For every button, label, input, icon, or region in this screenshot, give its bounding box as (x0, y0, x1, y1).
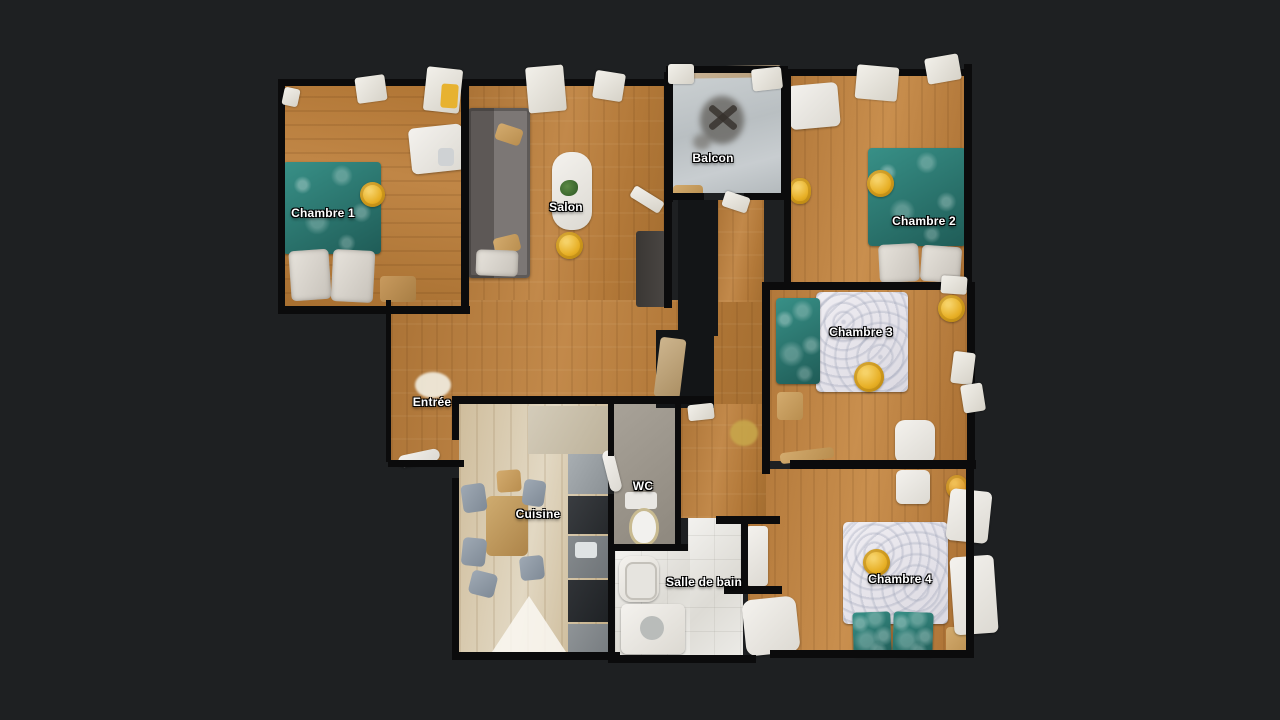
wall (966, 462, 974, 658)
scan-artifact (940, 275, 967, 295)
scan-artifact (668, 64, 694, 84)
wall (666, 193, 704, 200)
scan-artifact (751, 66, 783, 91)
wall (452, 396, 459, 440)
wall (386, 300, 391, 462)
wall (664, 200, 672, 308)
wall (452, 396, 714, 404)
toilet-tank (625, 492, 657, 509)
chair (460, 482, 488, 513)
fridge (568, 454, 608, 494)
wall (664, 72, 673, 202)
wall (770, 650, 974, 658)
chair (519, 555, 545, 581)
chair (496, 469, 521, 493)
wall (608, 404, 614, 456)
scan-artifact (855, 64, 900, 102)
dining-table (486, 496, 528, 556)
chair (938, 295, 965, 322)
pouf (867, 170, 894, 197)
washer-drum (640, 616, 664, 640)
wall (461, 85, 469, 311)
scan-artifact (525, 64, 567, 113)
wall (724, 586, 782, 594)
toilet-bowl (629, 508, 659, 546)
scan-void (678, 200, 718, 336)
chair (789, 178, 811, 204)
oven (568, 496, 608, 534)
wall (608, 551, 615, 663)
counter (528, 406, 608, 454)
armchair (896, 470, 930, 504)
dishwasher (568, 580, 608, 622)
plant (560, 180, 578, 196)
shower-tray (741, 595, 801, 656)
wardrobe (787, 82, 841, 130)
scan-artifact (950, 351, 976, 385)
wall (278, 306, 470, 314)
sofa-throw (476, 249, 519, 276)
scan-artifact (960, 382, 986, 413)
bed-pillows-teal (776, 298, 820, 384)
cabinet (568, 624, 608, 652)
hallway-floor-bath-side[interactable] (681, 404, 766, 518)
wall (452, 652, 620, 660)
wardrobe-door (949, 555, 998, 636)
wall (452, 478, 459, 660)
scan-artifact (687, 403, 715, 422)
dollhouse-view[interactable]: Chambre 1 Salon Balcon Chambre 2 Chambre… (0, 0, 1280, 720)
tv-cabinet (636, 231, 666, 307)
bed-bench (380, 276, 416, 302)
pouf (360, 182, 385, 207)
flower-decor-gold (730, 420, 758, 446)
shower (746, 526, 768, 586)
bench (777, 392, 803, 420)
bed-pillow (331, 249, 376, 303)
bed (843, 522, 948, 624)
bathtub-basin (625, 562, 657, 600)
pouf (854, 362, 884, 392)
scan-artifact-yellow (440, 83, 459, 108)
wall (762, 290, 770, 435)
wall (675, 404, 681, 550)
balcony-smudge (693, 134, 711, 150)
bed-pillow (288, 249, 331, 302)
wall (790, 460, 976, 469)
wall (762, 434, 770, 474)
scan-artifact (592, 70, 626, 102)
wall (388, 460, 464, 467)
kitchen-sink (575, 542, 597, 558)
desk-chair (438, 148, 454, 166)
bed-pillow (878, 243, 920, 283)
desk (408, 123, 467, 174)
wall (278, 79, 285, 313)
chair (521, 479, 546, 508)
scan-artifact (354, 74, 387, 104)
wall (784, 75, 791, 287)
wall (608, 494, 614, 550)
wall (744, 193, 788, 200)
bed-cushion (863, 549, 890, 576)
bed (283, 162, 381, 254)
flower-decor (415, 372, 451, 398)
pouf (556, 232, 583, 259)
wall (716, 516, 780, 524)
wall (741, 524, 748, 594)
hallway-floor-balcony-side[interactable] (717, 200, 764, 302)
chair (461, 537, 488, 567)
wall (461, 79, 672, 86)
wall (608, 655, 756, 663)
wall (964, 64, 972, 288)
armchair (895, 420, 935, 464)
bed (868, 148, 966, 246)
wall (608, 544, 688, 551)
